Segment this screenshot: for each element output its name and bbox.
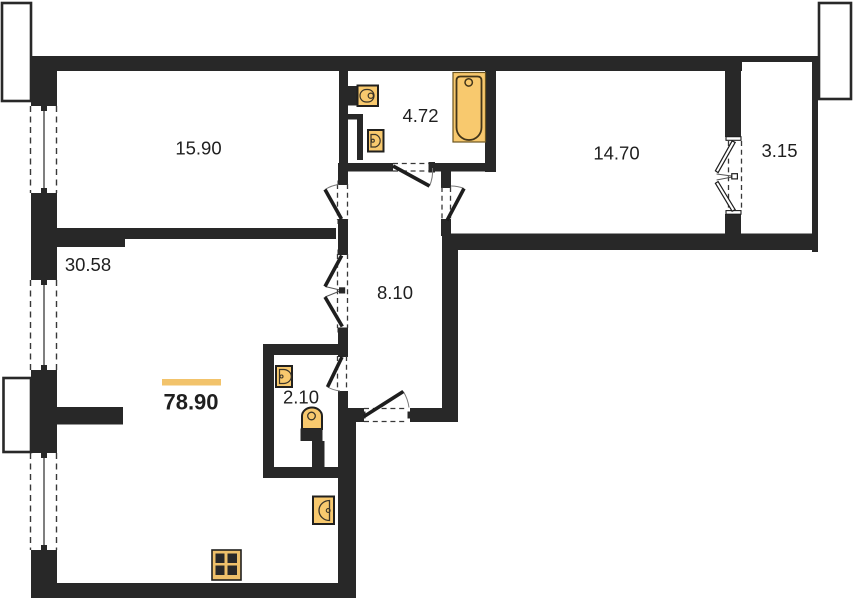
svg-text:78.90: 78.90 <box>163 390 218 415</box>
svg-text:30.58: 30.58 <box>65 254 111 275</box>
svg-text:14.70: 14.70 <box>593 143 639 164</box>
svg-text:2.10: 2.10 <box>283 387 319 408</box>
svg-text:4.72: 4.72 <box>402 105 438 126</box>
svg-text:3.15: 3.15 <box>761 140 797 161</box>
svg-text:15.90: 15.90 <box>175 138 221 159</box>
svg-text:8.10: 8.10 <box>377 282 413 303</box>
